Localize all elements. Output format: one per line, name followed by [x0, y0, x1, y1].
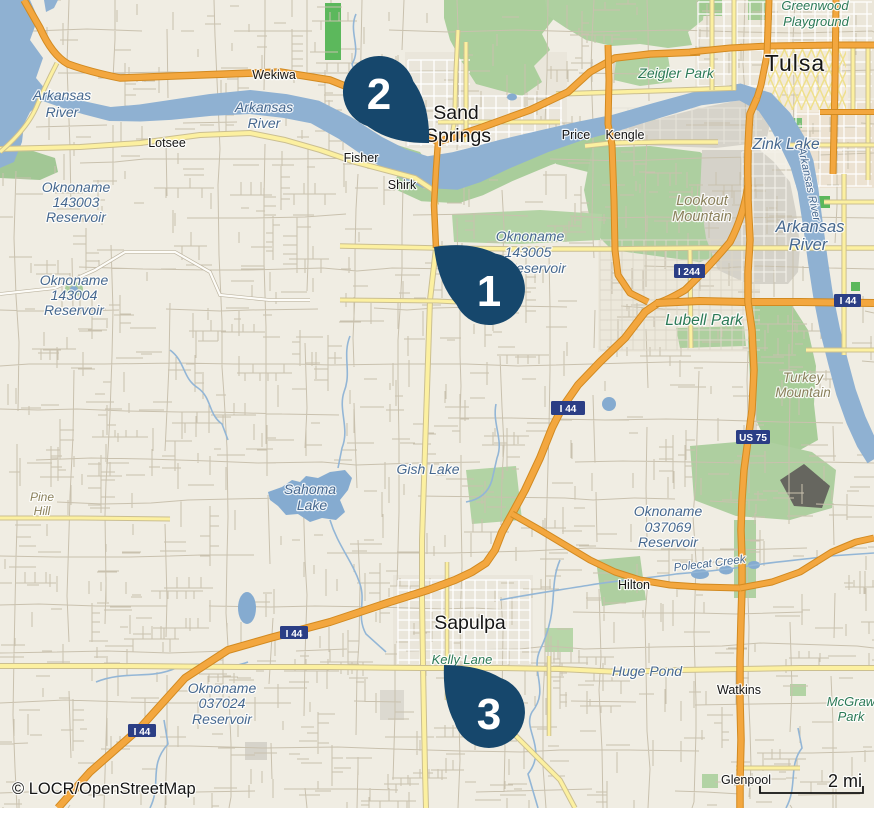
svg-text:2 mi: 2 mi [828, 771, 862, 791]
svg-text:US 75: US 75 [739, 433, 767, 444]
svg-text:Kelly Lane: Kelly Lane [432, 652, 493, 667]
svg-text:1: 1 [477, 267, 501, 316]
svg-text:Oknoname: Oknoname [40, 272, 109, 288]
svg-text:3: 3 [477, 690, 501, 739]
svg-text:143003: 143003 [53, 194, 100, 210]
svg-text:Arkansas: Arkansas [32, 87, 91, 103]
svg-text:Oknoname: Oknoname [496, 228, 565, 244]
svg-text:Arkansas: Arkansas [775, 218, 845, 236]
svg-text:Greenwood: Greenwood [781, 0, 849, 13]
svg-text:143004: 143004 [51, 287, 98, 303]
svg-text:Lubell Park: Lubell Park [665, 312, 744, 329]
svg-text:Hilton: Hilton [618, 578, 650, 592]
svg-text:Reservoir: Reservoir [638, 534, 699, 550]
svg-text:McGraw: McGraw [827, 694, 874, 709]
svg-text:Oknoname: Oknoname [188, 680, 257, 696]
svg-text:Wekiwa: Wekiwa [252, 68, 296, 82]
svg-text:Oknoname: Oknoname [634, 503, 703, 519]
svg-text:Zink Lake: Zink Lake [751, 136, 820, 153]
svg-text:Tulsa: Tulsa [765, 50, 825, 76]
svg-text:Pine: Pine [30, 490, 54, 504]
svg-text:Gish Lake: Gish Lake [396, 461, 459, 477]
svg-text:Sahoma: Sahoma [284, 481, 336, 497]
svg-text:Shirk: Shirk [388, 178, 417, 192]
svg-text:© LOCR/OpenStreetMap: © LOCR/OpenStreetMap [12, 780, 196, 798]
svg-text:Fisher: Fisher [344, 151, 379, 165]
svg-text:I 44: I 44 [134, 727, 151, 738]
svg-text:I 44: I 44 [840, 296, 857, 307]
svg-text:I 244: I 244 [678, 267, 701, 278]
svg-text:Turkey: Turkey [783, 370, 825, 385]
svg-text:143005: 143005 [505, 244, 552, 260]
svg-text:Reservoir: Reservoir [44, 302, 105, 318]
svg-text:2: 2 [367, 70, 391, 119]
svg-text:Lookout: Lookout [676, 193, 729, 209]
svg-text:Zeigler Park: Zeigler Park [637, 65, 714, 81]
svg-text:Sapulpa: Sapulpa [434, 612, 506, 634]
svg-text:Mountain: Mountain [775, 385, 831, 400]
svg-text:Park: Park [838, 709, 866, 724]
svg-text:Huge Pond: Huge Pond [612, 663, 683, 679]
svg-text:Lotsee: Lotsee [148, 136, 186, 150]
svg-text:River: River [789, 236, 829, 254]
svg-text:Reservoir: Reservoir [192, 711, 253, 727]
svg-text:037069: 037069 [645, 519, 692, 535]
svg-text:Price: Price [562, 128, 591, 142]
svg-text:River: River [46, 104, 80, 120]
svg-text:Kengle: Kengle [606, 128, 645, 142]
svg-text:I 44: I 44 [560, 404, 577, 415]
svg-text:Springs: Springs [425, 125, 491, 147]
svg-text:Oknoname: Oknoname [42, 179, 111, 195]
svg-text:Mountain: Mountain [672, 209, 732, 225]
svg-text:River: River [248, 115, 282, 131]
svg-text:Hill: Hill [34, 504, 51, 518]
svg-text:Arkansas: Arkansas [234, 99, 293, 115]
svg-text:Sand: Sand [433, 102, 479, 124]
svg-text:Reservoir: Reservoir [46, 209, 107, 225]
svg-text:Watkins: Watkins [717, 683, 761, 697]
svg-text:I 44: I 44 [286, 629, 303, 640]
svg-text:Playground: Playground [783, 14, 850, 29]
svg-text:Lake: Lake [297, 497, 328, 513]
svg-text:Glenpool: Glenpool [721, 773, 771, 787]
svg-text:037024: 037024 [199, 695, 246, 711]
